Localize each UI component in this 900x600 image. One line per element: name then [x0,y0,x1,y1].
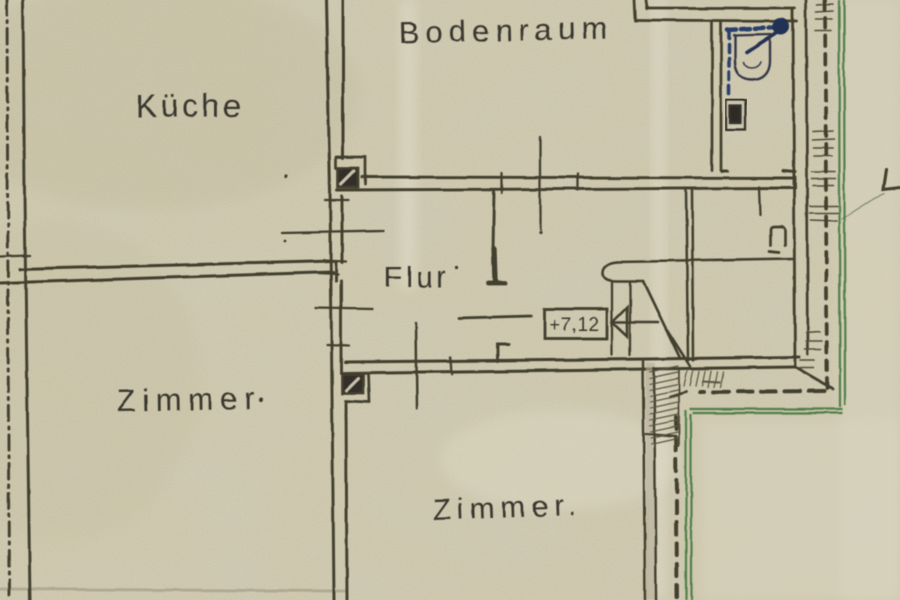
svg-text:Bodenraum: Bodenraum [398,11,613,50]
svg-text:Küche: Küche [136,88,244,124]
svg-text:+7,12: +7,12 [549,315,600,336]
svg-text:Zimmer.: Zimmer. [432,489,583,527]
svg-text:Flur: Flur [384,261,450,294]
svg-text:Zimmer: Zimmer [117,381,262,418]
